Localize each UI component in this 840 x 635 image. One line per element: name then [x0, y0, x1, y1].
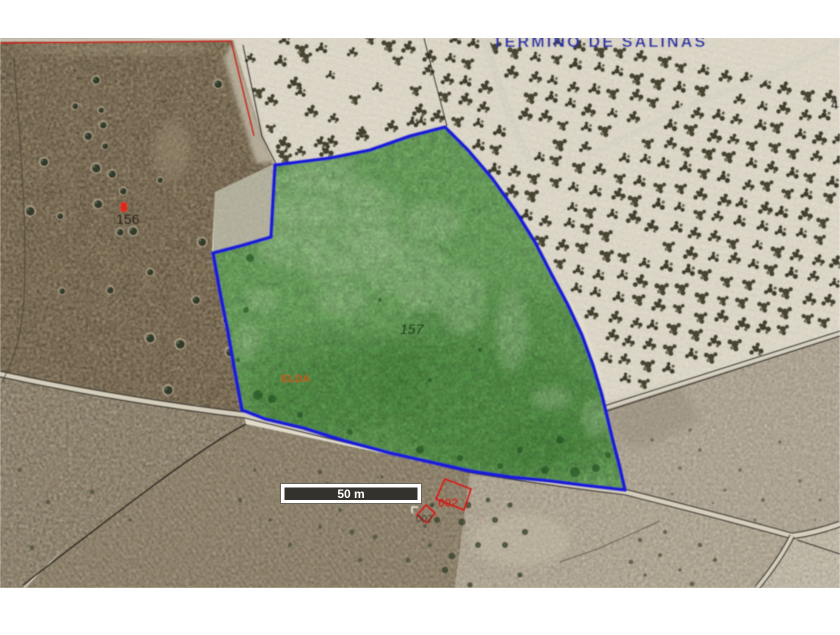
svg-text:002: 002 [438, 496, 458, 510]
svg-text:002: 002 [416, 514, 433, 525]
svg-text:50 m: 50 m [337, 487, 364, 501]
svg-text:157: 157 [400, 321, 425, 337]
svg-text:4: 4 [831, 97, 839, 112]
svg-text:156: 156 [116, 211, 140, 227]
svg-text:ELDA: ELDA [281, 373, 311, 385]
